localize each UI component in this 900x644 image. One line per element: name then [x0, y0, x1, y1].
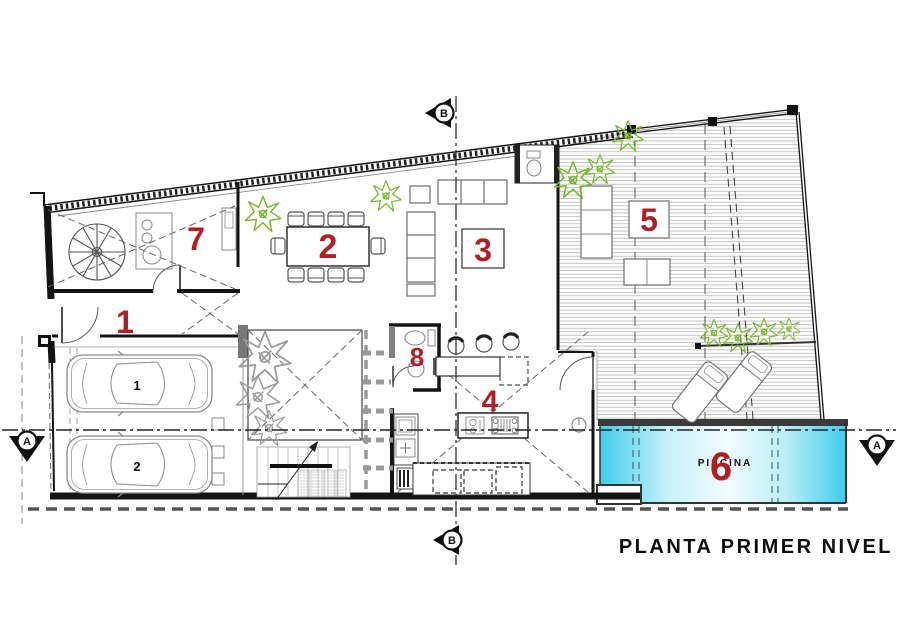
room-label-2: 2: [319, 228, 338, 266]
deck-terrace: [558, 111, 821, 420]
section-marker-b-bottom: B: [433, 525, 462, 555]
section-marker-a-right: A: [859, 436, 895, 467]
main-stairs: [257, 441, 350, 500]
stair-treads-hatched: [298, 470, 346, 497]
section-a-right-letter: A: [873, 440, 881, 452]
room-label-7: 7: [187, 221, 205, 257]
car-2-label: 2: [133, 459, 140, 474]
sofa-horizontal: [438, 180, 507, 204]
door-arc-kitchen-deck: [560, 357, 593, 390]
room-label-3: 3: [474, 232, 492, 268]
kitchen-bottom-counter: [413, 463, 530, 495]
room-label-4: 4: [482, 385, 499, 418]
side-table: [410, 186, 430, 203]
corner-bracket: [30, 193, 44, 206]
bathroom: 8: [389, 325, 441, 390]
room-label-6: 6: [710, 445, 732, 489]
floor-plan-drawing: PISCINA 6: [0, 0, 900, 644]
overhead-joists: [363, 330, 393, 495]
pool-top-wall: [598, 419, 848, 426]
door-arc-hall: [62, 307, 98, 343]
garage: 1 2: [67, 348, 224, 497]
drawing-title: PLANTA PRIMER NIVEL: [619, 536, 893, 558]
pool: PISCINA 6: [597, 419, 848, 504]
room-label-1: 1: [116, 304, 134, 340]
garage-gate: [52, 363, 54, 491]
living-room: 3: [407, 180, 507, 296]
courtyard: [236, 330, 362, 446]
floor-plan-page: PISCINA 6: [0, 0, 900, 644]
room-label-5: 5: [640, 202, 658, 238]
section-marker-b-top: B: [425, 98, 454, 128]
wc-top: [515, 145, 559, 183]
dining-room: 2: [271, 212, 385, 282]
section-b-top-letter: B: [440, 108, 448, 120]
vent-grate: [397, 468, 413, 489]
section-marker-a-left: A: [9, 432, 45, 463]
section-a-left-letter: A: [23, 436, 31, 448]
spiral-stair: [69, 224, 125, 280]
sofa-vertical: [407, 212, 435, 282]
section-b-bottom-letter: B: [448, 535, 456, 547]
room-label-8: 8: [410, 342, 424, 372]
deck-sofa: [581, 186, 612, 258]
left-wall-upper: [47, 206, 51, 299]
bar-counter: [436, 357, 500, 376]
garage-shelves: [212, 418, 224, 485]
deck-floor: [558, 111, 821, 420]
car-1-label: 1: [133, 378, 140, 393]
